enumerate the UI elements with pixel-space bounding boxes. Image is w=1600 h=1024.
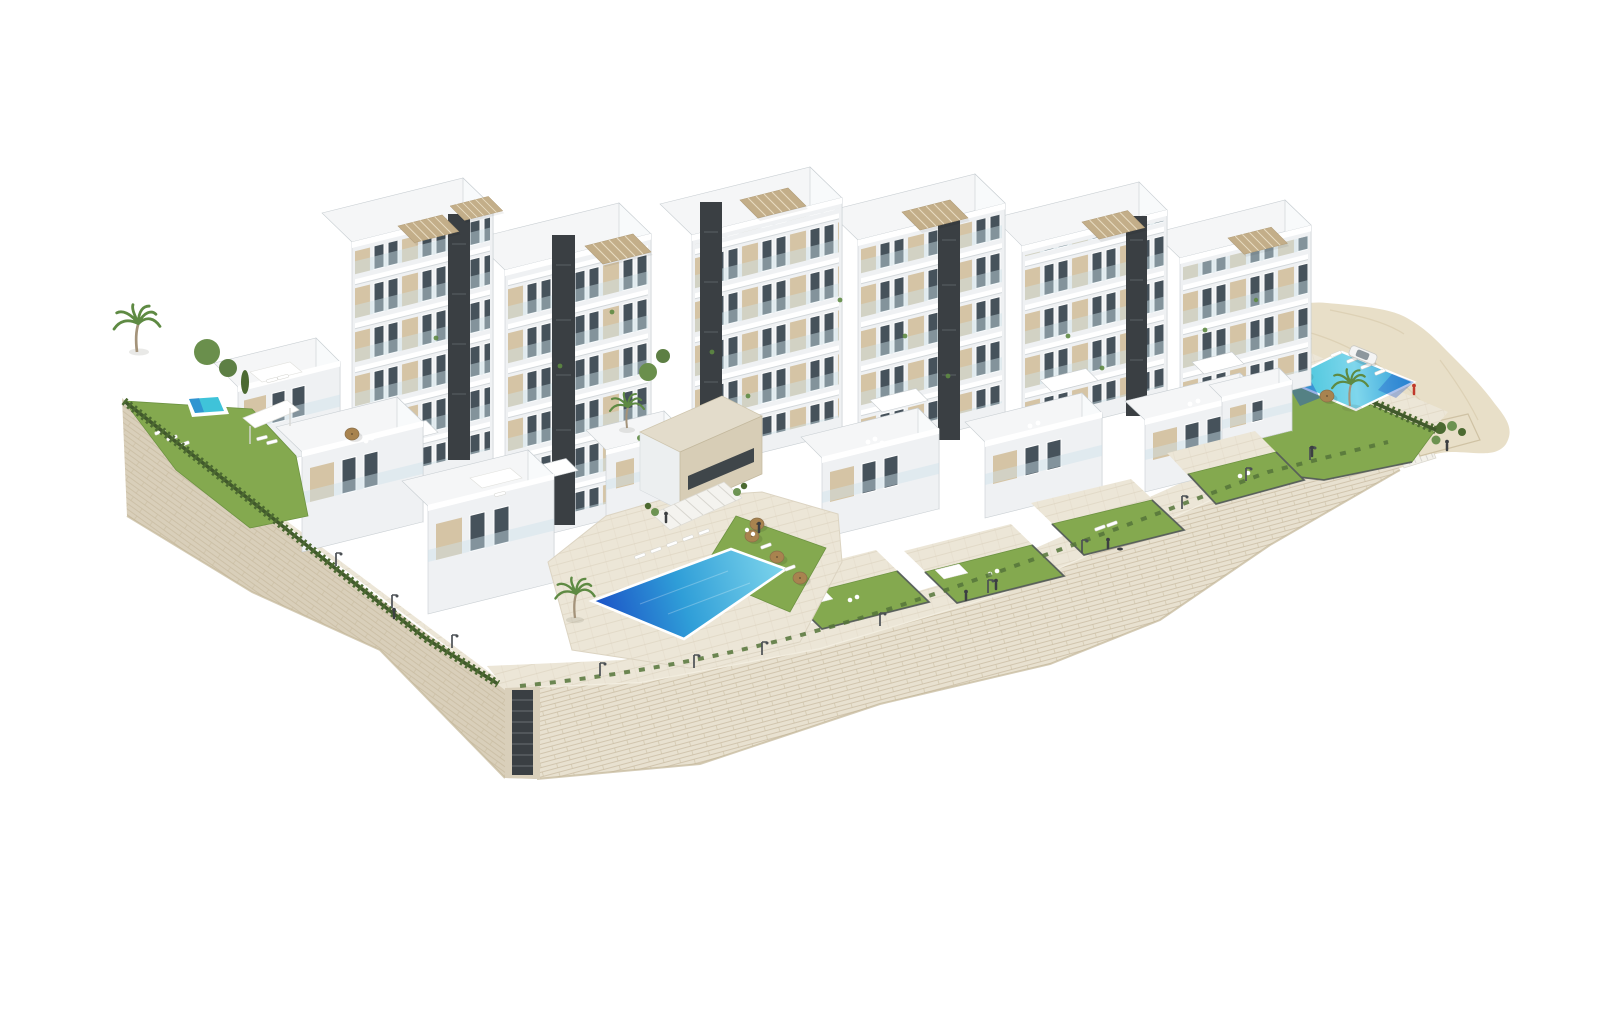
dog: [1117, 548, 1123, 551]
cypress-tree: [241, 370, 249, 394]
tree: [656, 349, 670, 363]
tree: [639, 363, 657, 381]
elevator-shaft: [938, 212, 960, 440]
left-private-pool: [185, 394, 229, 417]
elevator-shaft: [1126, 216, 1147, 416]
tree: [219, 359, 237, 377]
architectural-render: Aerial 3D architectural rendering of a m…: [0, 0, 1600, 1024]
elevator-shaft: [448, 214, 470, 460]
render-canvas: Aerial 3D architectural rendering of a m…: [0, 0, 1600, 1024]
tree: [194, 339, 220, 365]
palm-tree: [114, 305, 160, 352]
wall-corner-staircase: [505, 683, 540, 779]
elevator-shaft: [552, 235, 575, 525]
